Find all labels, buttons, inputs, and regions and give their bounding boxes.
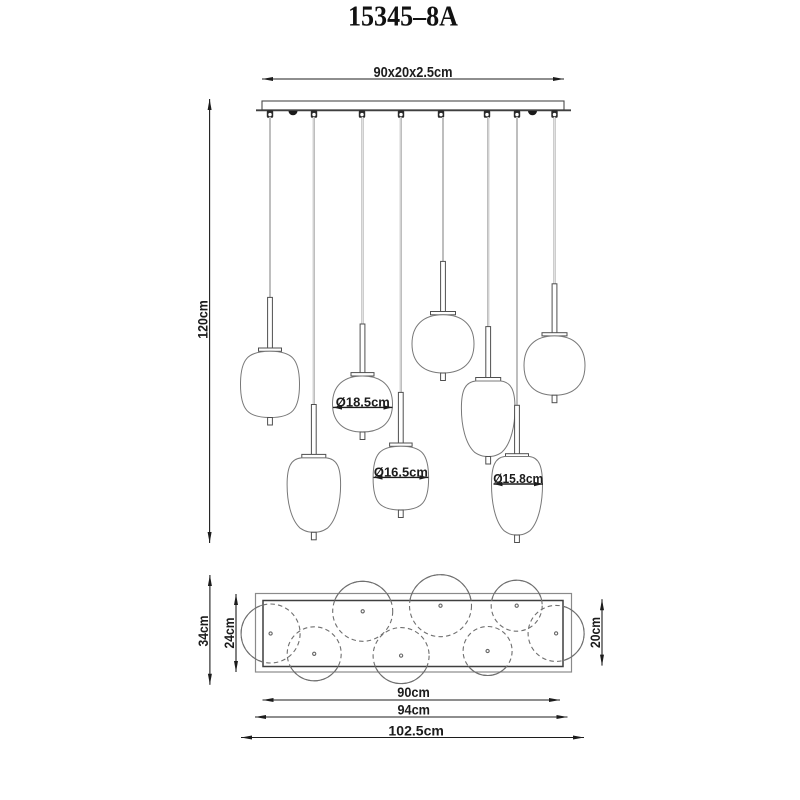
svg-text:34cm: 34cm: [196, 616, 211, 647]
svg-text:Ø15.8cm: Ø15.8cm: [493, 471, 543, 486]
svg-text:90x20x2.5cm: 90x20x2.5cm: [374, 65, 453, 81]
svg-text:24cm: 24cm: [222, 618, 237, 649]
svg-text:15345–8A: 15345–8A: [348, 2, 459, 33]
svg-text:102.5cm: 102.5cm: [388, 724, 444, 739]
svg-text:90cm: 90cm: [397, 685, 430, 700]
svg-text:20cm: 20cm: [588, 617, 603, 648]
svg-text:Ø18.5cm: Ø18.5cm: [336, 394, 390, 409]
svg-text:94cm: 94cm: [397, 703, 430, 718]
svg-text:Ø16.5cm: Ø16.5cm: [374, 464, 428, 479]
svg-text:120cm: 120cm: [196, 300, 211, 339]
